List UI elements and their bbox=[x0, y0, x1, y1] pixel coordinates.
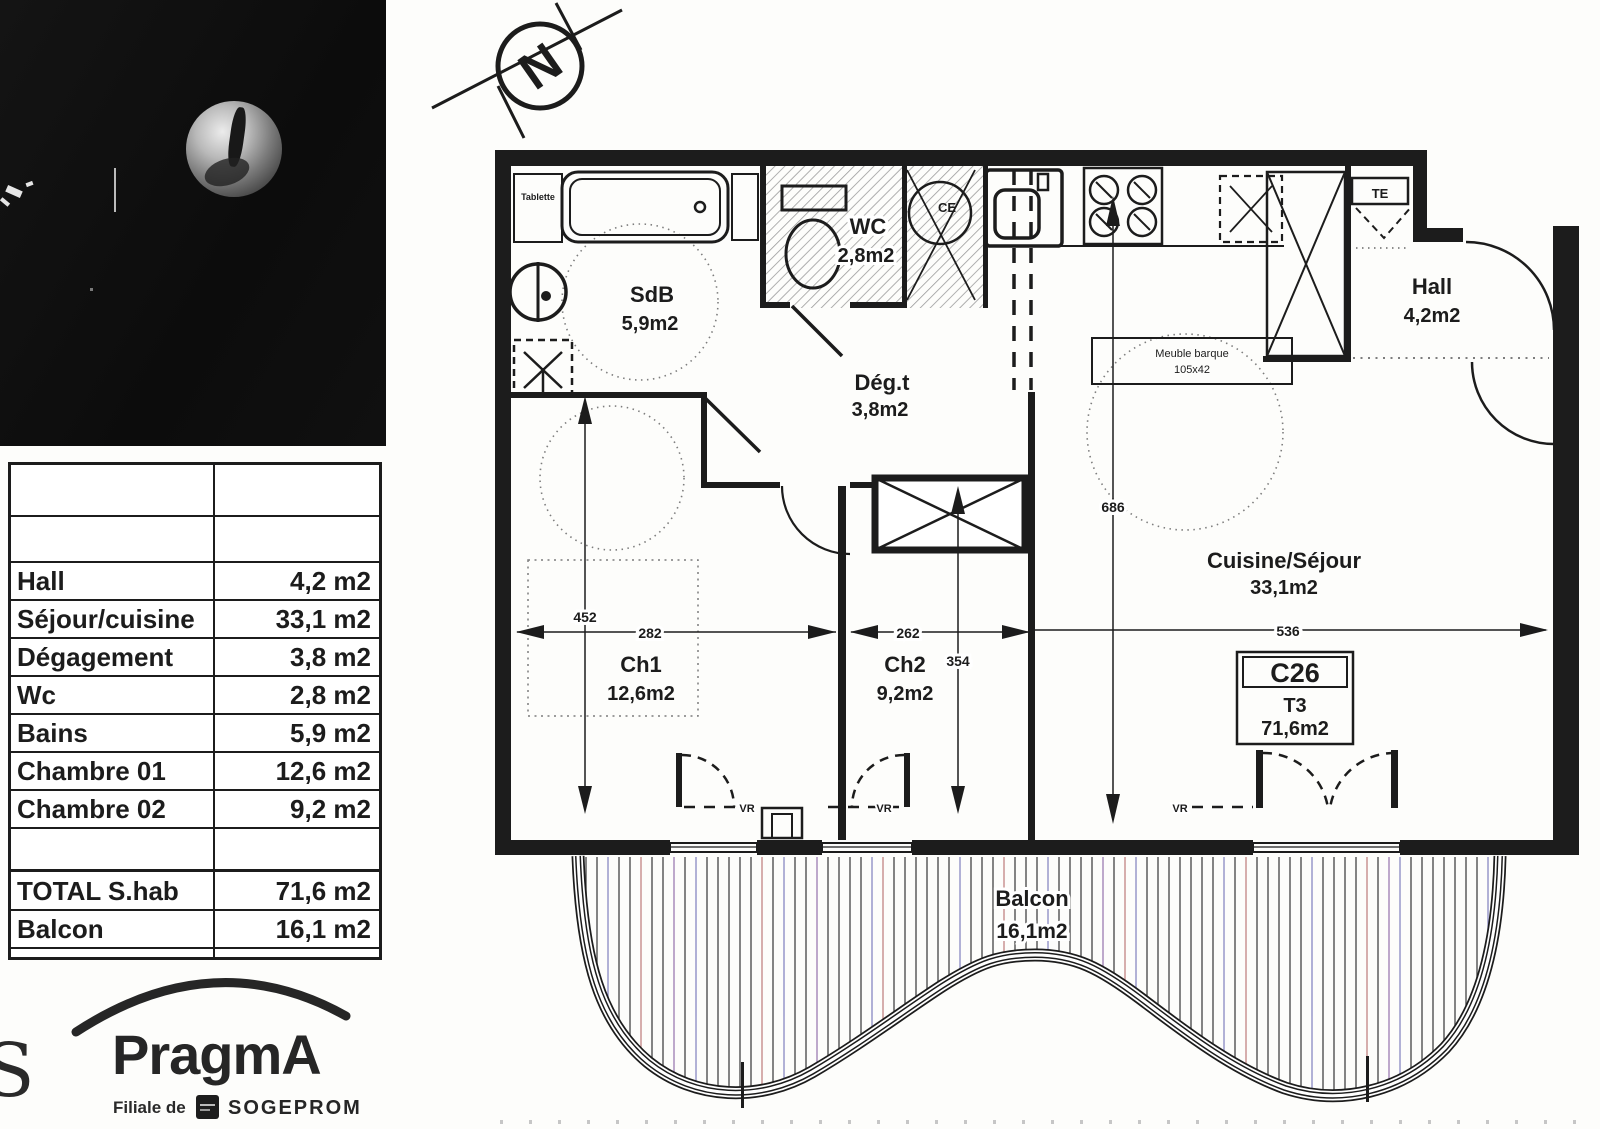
table-row: Hall 4,2 m2 bbox=[11, 561, 379, 599]
table-cell bbox=[11, 465, 215, 515]
stove-icon bbox=[1084, 168, 1162, 244]
balcony: Balcon 16,1m2 bbox=[578, 856, 1500, 1118]
dimension-ch1-height: 452 bbox=[573, 396, 597, 814]
svg-text:354: 354 bbox=[946, 653, 970, 669]
unit-area: 71,6m2 bbox=[1261, 718, 1329, 740]
table-row bbox=[11, 465, 379, 515]
hall-door-arc bbox=[1472, 362, 1554, 444]
sdb-door-leaf bbox=[703, 396, 760, 452]
ce-label: CE bbox=[938, 200, 956, 215]
room-label-wc: WC bbox=[850, 214, 887, 239]
table-cell: 12,6 m2 bbox=[215, 754, 379, 788]
room-label-sdb: SdB bbox=[630, 282, 674, 307]
table-row bbox=[11, 827, 379, 869]
room-label-balcon: Balcon bbox=[995, 886, 1068, 911]
filiale-label: Filiale de bbox=[113, 1098, 186, 1118]
unit-code: C26 bbox=[1270, 658, 1320, 688]
shower-drain-icon bbox=[514, 340, 572, 396]
area-table: Hall 4,2 m2 Séjour/cuisine 33,1 m2 Dégag… bbox=[8, 462, 382, 960]
table-cell: 71,6 m2 bbox=[215, 874, 379, 908]
table-cell bbox=[11, 829, 215, 869]
table-cell: Wc bbox=[11, 677, 215, 713]
table-cell: Balcon bbox=[11, 911, 215, 947]
table-cell: Dégagement bbox=[11, 639, 215, 675]
table-cell: Bains bbox=[11, 715, 215, 751]
svg-text:452: 452 bbox=[573, 609, 597, 625]
wc-door-leaf bbox=[792, 306, 842, 356]
table-cell: 9,2 m2 bbox=[215, 792, 379, 826]
room-label-hall: Hall bbox=[1412, 274, 1452, 299]
sogeprom-label: SOGEPROM bbox=[228, 1097, 362, 1120]
te-label: TE bbox=[1372, 186, 1389, 201]
washbasin-icon bbox=[510, 262, 566, 322]
svg-text:5,9m2: 5,9m2 bbox=[622, 313, 679, 335]
radiator-icon bbox=[762, 808, 802, 838]
svg-text:282: 282 bbox=[638, 625, 662, 641]
vr-label: VR bbox=[876, 803, 891, 815]
vr-label: VR bbox=[1172, 803, 1187, 815]
table-row: Bains 5,9 m2 bbox=[11, 713, 379, 751]
entry-door-arc bbox=[1466, 242, 1554, 330]
interior-doors bbox=[703, 306, 850, 554]
sink-icon bbox=[986, 170, 1062, 246]
table-row: Chambre 02 9,2 m2 bbox=[11, 789, 379, 827]
scanned-floor-plan-page: N bbox=[0, 0, 1600, 1129]
table-cell: Séjour/cuisine bbox=[11, 601, 215, 637]
svg-text:33,1m2: 33,1m2 bbox=[1250, 577, 1318, 599]
compass-icon: N bbox=[432, 3, 622, 138]
room-label-deg: Dég.t bbox=[855, 370, 911, 395]
svg-text:3,8m2: 3,8m2 bbox=[852, 399, 909, 421]
walls bbox=[495, 150, 1579, 855]
room-label-sejour: Cuisine/Séjour bbox=[1207, 548, 1361, 573]
meuble-label: Meuble barque bbox=[1155, 348, 1228, 360]
dimension-ch2-width: 262 bbox=[850, 625, 1030, 641]
svg-text:12,6m2: 12,6m2 bbox=[607, 683, 675, 705]
kitchen-cabinet: Meuble barque 105x42 bbox=[1092, 338, 1292, 384]
sogeprom-logo-icon bbox=[196, 1095, 219, 1119]
unit-id-box: C26 T3 71,6m2 bbox=[1237, 652, 1353, 744]
dimension-sejour-height: 686 bbox=[1101, 196, 1125, 824]
room-label-ch1: Ch1 bbox=[620, 652, 662, 677]
room-label-ch2: Ch2 bbox=[884, 652, 926, 677]
cover-photo bbox=[0, 0, 386, 446]
dimension-sejour-width: 536 bbox=[1035, 623, 1548, 639]
table-cell bbox=[11, 517, 215, 561]
dimension-ch1-width: 282 bbox=[516, 625, 836, 641]
table-cell: 4,2 m2 bbox=[215, 564, 379, 598]
table-cell: 16,1 m2 bbox=[215, 912, 379, 946]
table-row bbox=[11, 515, 379, 561]
svg-text:262: 262 bbox=[896, 625, 920, 641]
table-cell: TOTAL S.hab bbox=[11, 872, 215, 909]
table-row: Chambre 01 12,6 m2 bbox=[11, 751, 379, 789]
meuble-size-label: 105x42 bbox=[1174, 364, 1210, 376]
svg-text:2,8m2: 2,8m2 bbox=[838, 245, 895, 267]
table-cell: Chambre 02 bbox=[11, 791, 215, 827]
hall-wardrobe-icon bbox=[1267, 172, 1345, 356]
shaft-dashed-lines bbox=[1014, 170, 1031, 390]
table-cell: Hall bbox=[11, 563, 215, 599]
vr-label: VR bbox=[739, 803, 754, 815]
table-row: Séjour/cuisine 33,1 m2 bbox=[11, 599, 379, 637]
electric-panel-icon: TE bbox=[1352, 178, 1412, 248]
table-cell: 2,8 m2 bbox=[215, 678, 379, 712]
wardrobe-icon bbox=[875, 478, 1025, 550]
svg-text:686: 686 bbox=[1101, 499, 1125, 515]
table-row-total: TOTAL S.hab 71,6 m2 bbox=[11, 869, 379, 909]
unit-type: T3 bbox=[1283, 695, 1306, 717]
table-row: Dégagement 3,8 m2 bbox=[11, 637, 379, 675]
svg-text:4,2m2: 4,2m2 bbox=[1404, 305, 1461, 327]
svg-text:9,2m2: 9,2m2 bbox=[877, 683, 934, 705]
tablette-label: Tablette bbox=[521, 192, 555, 202]
moon-photo bbox=[186, 101, 282, 197]
table-row: Balcon 16,1 m2 bbox=[11, 909, 379, 947]
pragma-logo: PragmA bbox=[112, 1022, 321, 1087]
bathtub-icon bbox=[562, 172, 728, 242]
table-cell: 5,9 m2 bbox=[215, 716, 379, 750]
compass-north-letter: N bbox=[509, 32, 573, 101]
svg-text:16,1m2: 16,1m2 bbox=[996, 920, 1067, 943]
table-cell: Chambre 01 bbox=[11, 753, 215, 789]
svg-text:536: 536 bbox=[1276, 623, 1300, 639]
table-cell: 33,1 m2 bbox=[215, 602, 379, 636]
table-cell: 3,8 m2 bbox=[215, 640, 379, 674]
table-row: Wc 2,8 m2 bbox=[11, 675, 379, 713]
